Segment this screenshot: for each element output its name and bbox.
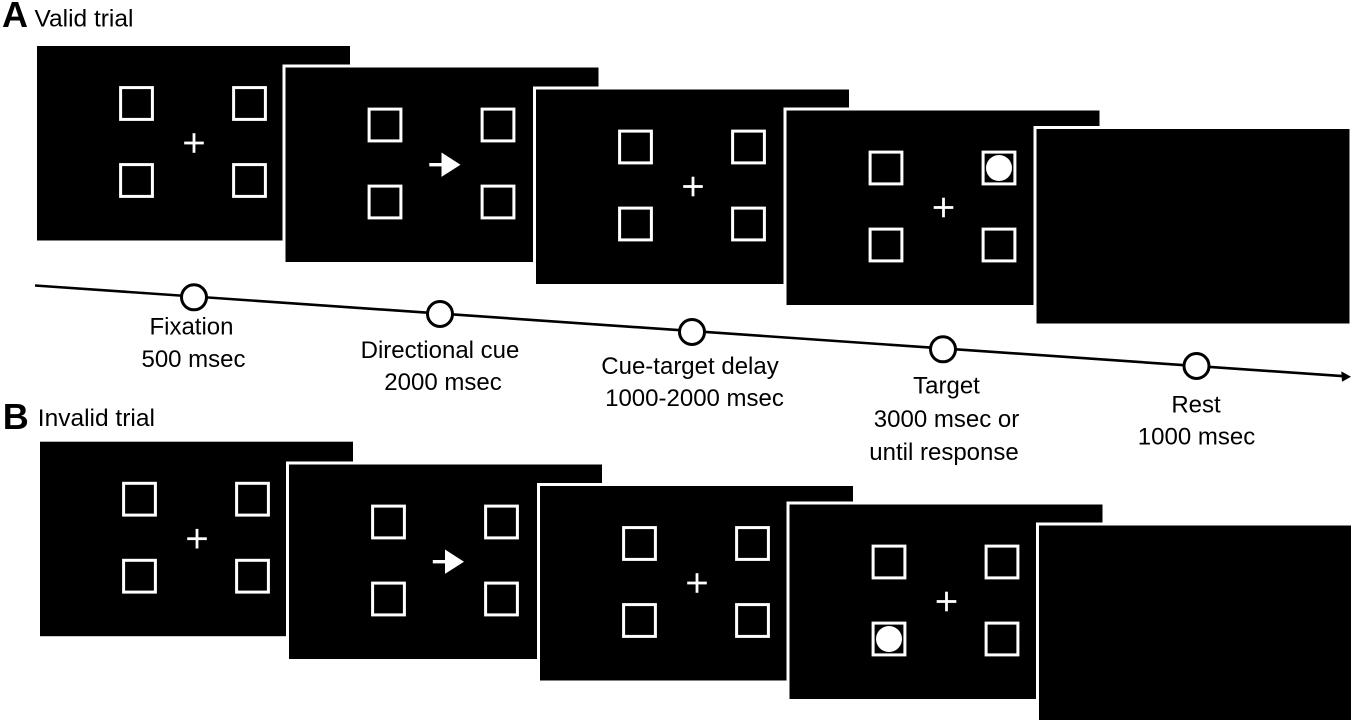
svg-text:until response: until response (869, 439, 1018, 466)
svg-text:2000 msec: 2000 msec (384, 369, 501, 396)
svg-text:B: B (3, 396, 29, 437)
svg-text:A: A (2, 0, 28, 35)
svg-text:Cue-target delay: Cue-target delay (601, 353, 778, 380)
svg-text:500 msec: 500 msec (141, 346, 245, 373)
svg-text:Rest: Rest (1171, 392, 1221, 419)
svg-text:1000 msec: 1000 msec (1138, 424, 1255, 451)
svg-text:Directional cue: Directional cue (361, 337, 520, 364)
svg-text:1000-2000 msec: 1000-2000 msec (605, 385, 784, 412)
svg-text:Fixation: Fixation (149, 313, 233, 340)
svg-text:Valid trial: Valid trial (35, 6, 134, 33)
svg-text:Invalid trial: Invalid trial (38, 405, 155, 432)
svg-text:3000 msec or: 3000 msec or (874, 406, 1019, 433)
svg-text:Target: Target (913, 373, 980, 400)
